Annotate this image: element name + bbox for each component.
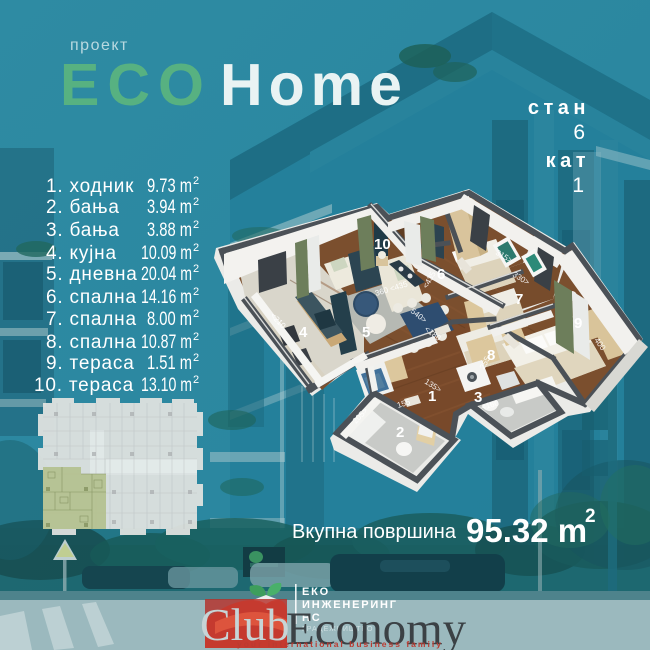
svg-text:2: 2 xyxy=(193,196,199,208)
svg-text:5. дневна: 5. дневна xyxy=(46,264,138,285)
svg-text:10: 10 xyxy=(374,236,391,253)
svg-text:ЕКО: ЕКО xyxy=(302,586,330,598)
svg-text:2: 2 xyxy=(193,219,199,231)
svg-text:1: 1 xyxy=(572,174,584,197)
svg-text:7: 7 xyxy=(515,291,523,308)
svg-text:Вкупна површина: Вкупна површина xyxy=(292,521,457,543)
svg-text:3.88 m: 3.88 m xyxy=(147,220,192,241)
svg-text:4. кујна: 4. кујна xyxy=(46,243,117,264)
svg-text:2: 2 xyxy=(193,352,199,364)
svg-text:10.87 m: 10.87 m xyxy=(141,332,192,353)
svg-text:2: 2 xyxy=(193,374,199,386)
svg-text:2: 2 xyxy=(193,175,199,187)
svg-text:7. спална: 7. спална xyxy=(46,309,137,330)
svg-text:2. бања: 2. бања xyxy=(46,197,120,218)
svg-text:8.00 m: 8.00 m xyxy=(147,309,192,330)
svg-text:9.73 m: 9.73 m xyxy=(147,176,192,197)
svg-text:1. ходник: 1. ходник xyxy=(46,176,134,197)
svg-text:2: 2 xyxy=(193,286,199,298)
svg-text:13.10 m: 13.10 m xyxy=(141,375,192,396)
svg-text:14.16 m: 14.16 m xyxy=(141,287,192,308)
svg-text:6: 6 xyxy=(573,121,585,144)
svg-text:ECO: ECO xyxy=(60,52,212,118)
svg-text:20.04 m: 20.04 m xyxy=(141,264,192,285)
svg-text:3. бања: 3. бања xyxy=(46,220,120,241)
svg-text:95.32 m: 95.32 m xyxy=(466,512,587,549)
svg-text:5: 5 xyxy=(362,324,370,341)
svg-text:10. тераса: 10. тераса xyxy=(34,375,134,396)
svg-text:2: 2 xyxy=(585,506,596,527)
svg-text:стан: стан xyxy=(528,97,590,119)
svg-text:9: 9 xyxy=(574,315,582,332)
svg-text:9. тераса: 9. тераса xyxy=(46,353,135,374)
svg-text:6. спална: 6. спална xyxy=(46,287,137,308)
svg-text:2: 2 xyxy=(193,331,199,343)
svg-text:10.09 m: 10.09 m xyxy=(141,243,192,264)
svg-text:2: 2 xyxy=(193,308,199,320)
svg-text:2: 2 xyxy=(396,424,404,441)
svg-text:your international business fa: your international business family xyxy=(237,639,443,649)
svg-text:6: 6 xyxy=(437,266,445,283)
svg-text:2: 2 xyxy=(193,263,199,275)
svg-text:Home: Home xyxy=(220,52,408,118)
svg-text:2: 2 xyxy=(193,242,199,254)
svg-text:1.51 m: 1.51 m xyxy=(147,353,192,374)
svg-text:кат: кат xyxy=(546,150,590,172)
svg-text:4: 4 xyxy=(299,324,308,341)
svg-text:8. спална: 8. спална xyxy=(46,332,137,353)
svg-text:3.94 m: 3.94 m xyxy=(147,197,192,218)
